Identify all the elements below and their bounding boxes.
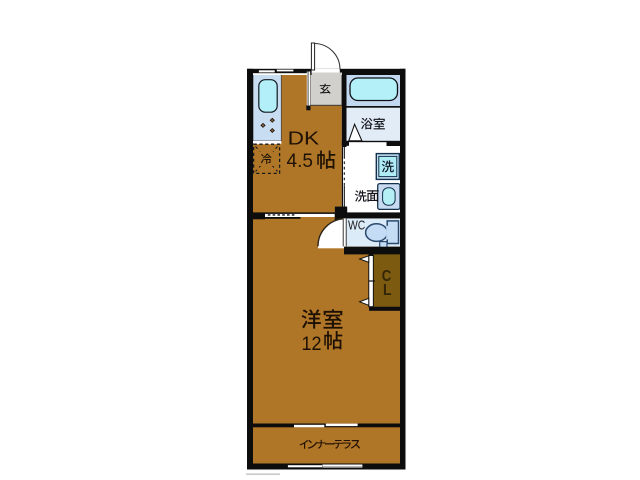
svg-text:L: L — [383, 282, 392, 299]
svg-text:12: 12 — [302, 333, 322, 355]
svg-text:DK: DK — [288, 128, 320, 149]
svg-text:WC: WC — [348, 218, 366, 233]
svg-text:4.5: 4.5 — [287, 151, 313, 172]
